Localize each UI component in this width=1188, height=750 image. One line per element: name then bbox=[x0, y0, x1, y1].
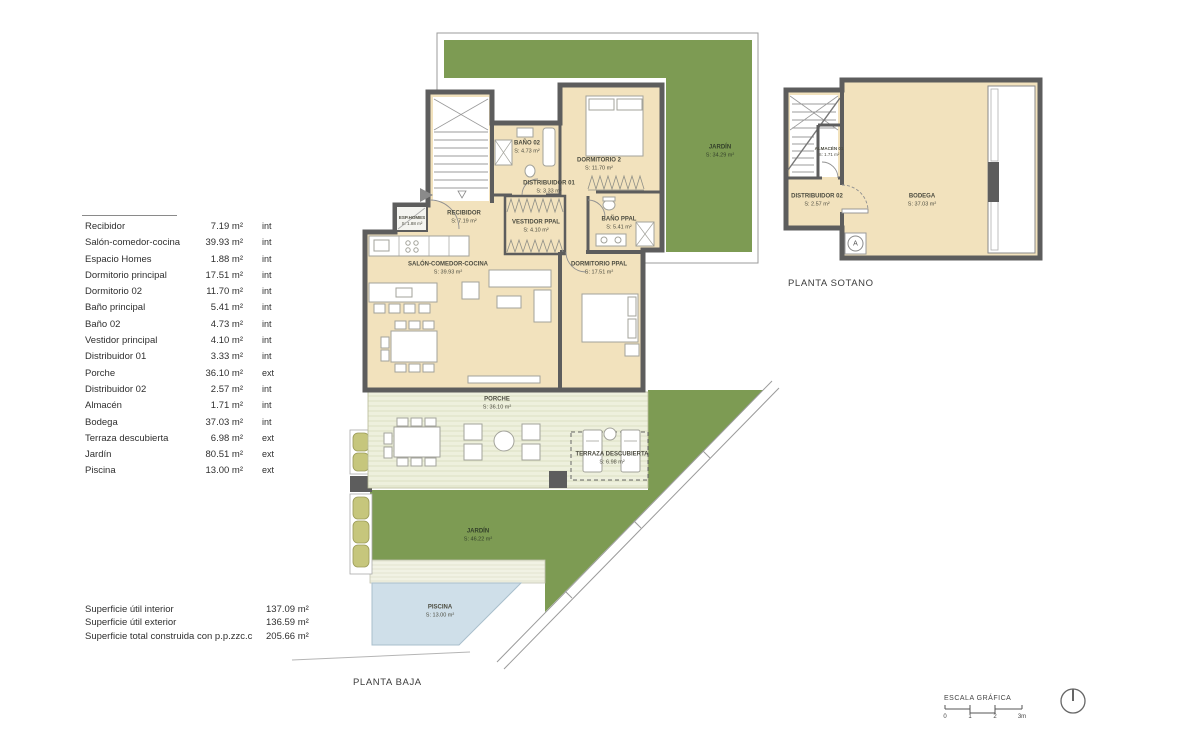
room-area: S: 34.29 m² bbox=[706, 152, 734, 159]
legend-room-area: 37.03 m² bbox=[189, 417, 243, 428]
room-name: DISTRIBUIDOR 02 bbox=[791, 194, 843, 200]
room-label-recibidor: RECIBIDORS: 7.19 m² bbox=[447, 211, 481, 226]
room-label-jardin: JARDÍNS: 46.22 m² bbox=[464, 529, 492, 544]
legend-row: Baño principal5.41 m²int bbox=[85, 302, 285, 318]
room-area: S: 39.93 m² bbox=[408, 269, 488, 276]
legend-row: Dormitorio 0211.70 m²int bbox=[85, 286, 285, 302]
room-area: S: 46.22 m² bbox=[464, 536, 492, 543]
room-name: JARDÍN bbox=[709, 145, 731, 151]
room-label-almacen: ALMACÉN 01S: 1.71 m² bbox=[815, 146, 844, 158]
legend-room-area: 80.51 m² bbox=[189, 449, 243, 460]
legend-room-area: 11.70 m² bbox=[189, 286, 243, 297]
total-name: Superficie total construida con p.p.zzc.… bbox=[85, 631, 266, 642]
legend-room-type: ext bbox=[262, 368, 274, 378]
north-indicator-icon bbox=[1061, 689, 1085, 713]
room-label-esp-homes: ESP.HOMESS: 1.88 m² bbox=[399, 215, 425, 227]
legend-row: Almacén1.71 m²int bbox=[85, 400, 285, 416]
floor-plan-sheet: Recibidor7.19 m²int Salón-comedor-cocina… bbox=[0, 0, 1188, 750]
room-area: S: 37.03 m² bbox=[908, 201, 936, 208]
room-area: S: 17.51 m² bbox=[571, 269, 627, 276]
legend-room-type: int bbox=[262, 319, 272, 329]
legend-room-name: Jardín bbox=[85, 449, 189, 460]
legend-room-name: Distribuidor 01 bbox=[85, 351, 189, 362]
room-area: S: 6.98 m² bbox=[576, 459, 649, 466]
legend-room-area: 39.93 m² bbox=[189, 237, 243, 248]
legend-room-name: Porche bbox=[85, 368, 189, 379]
legend-room-name: Piscina bbox=[85, 465, 189, 476]
legend-room-type: int bbox=[262, 237, 272, 247]
legend-room-area: 4.10 m² bbox=[189, 335, 243, 346]
pool-deck bbox=[370, 560, 545, 583]
legend-room-area: 1.88 m² bbox=[189, 254, 243, 265]
room-label-bano-ppal: BAÑO PPALS: 5.41 m² bbox=[602, 217, 637, 232]
sotano-staircase bbox=[788, 95, 840, 177]
legend-room-area: 6.98 m² bbox=[189, 433, 243, 444]
room-name: DORMITORIO PPAL bbox=[571, 262, 627, 268]
legend-room-name: Recibidor bbox=[85, 221, 189, 232]
legend-room-type: int bbox=[262, 270, 272, 280]
room-label-jardin-superior: JARDÍNS: 34.29 m² bbox=[706, 145, 734, 160]
room-name: TERRAZA DESCUBIERTA bbox=[576, 452, 649, 458]
legend-room-name: Baño 02 bbox=[85, 319, 189, 330]
room-name: VESTIDOR PPAL bbox=[512, 220, 560, 226]
plan-sotano-title: PLANTA SOTANO bbox=[788, 278, 874, 289]
legend-room-name: Dormitorio 02 bbox=[85, 286, 189, 297]
total-value: 205.66 m² bbox=[266, 631, 309, 642]
room-area: S: 11.70 m² bbox=[577, 165, 621, 172]
totals-row: Superficie total construida con p.p.zzc.… bbox=[85, 631, 309, 644]
legend-room-type: int bbox=[262, 351, 272, 361]
legend-row: Distribuidor 013.33 m²int bbox=[85, 351, 285, 367]
legend-room-name: Dormitorio principal bbox=[85, 270, 189, 281]
room-area: S: 3.33 m² bbox=[523, 188, 575, 195]
scale-bar-graphic bbox=[945, 705, 1022, 713]
room-label-bano02: BAÑO 02S: 4.73 m² bbox=[514, 141, 540, 156]
legend-room-area: 7.19 m² bbox=[189, 221, 243, 232]
legend-room-type: int bbox=[262, 335, 272, 345]
legend-row: Porche36.10 m²ext bbox=[85, 368, 285, 384]
room-area: S: 13.00 m² bbox=[426, 612, 454, 619]
legend-room-area: 5.41 m² bbox=[189, 302, 243, 313]
room-label-terraza: TERRAZA DESCUBIERTAS: 6.98 m² bbox=[576, 452, 649, 467]
plan-sotano-drawing bbox=[786, 80, 1040, 258]
room-name: JARDÍN bbox=[467, 529, 489, 535]
legend-room-name: Baño principal bbox=[85, 302, 189, 313]
legend-room-area: 3.33 m² bbox=[189, 351, 243, 362]
room-name: ESP.HOMES bbox=[399, 215, 425, 220]
room-name: DISTRIBUIDOR 01 bbox=[523, 181, 575, 187]
legend-row: Espacio Homes1.88 m²int bbox=[85, 254, 285, 270]
legend-room-name: Salón-comedor-cocina bbox=[85, 237, 189, 248]
legend-room-type: int bbox=[262, 221, 272, 231]
legend-room-area: 4.73 m² bbox=[189, 319, 243, 330]
legend-row: Terraza descubierta6.98 m²ext bbox=[85, 433, 285, 449]
room-name: BODEGA bbox=[909, 194, 935, 200]
room-name: BAÑO PPAL bbox=[602, 217, 637, 223]
legend-room-area: 1.71 m² bbox=[189, 400, 243, 411]
room-label-dormitorio-ppal: DORMITORIO PPALS: 17.51 m² bbox=[571, 262, 627, 277]
room-legend: Recibidor7.19 m²int Salón-comedor-cocina… bbox=[85, 221, 285, 482]
room-area: S: 4.73 m² bbox=[514, 148, 540, 155]
legend-row: Distribuidor 022.57 m²int bbox=[85, 384, 285, 400]
scale-tick-1: 1 bbox=[968, 714, 971, 720]
legend-row: Dormitorio principal17.51 m²int bbox=[85, 270, 285, 286]
legend-row: Bodega37.03 m²int bbox=[85, 417, 285, 433]
room-area: S: 1.88 m² bbox=[399, 221, 425, 227]
legend-room-name: Bodega bbox=[85, 417, 189, 428]
total-name: Superficie útil exterior bbox=[85, 617, 266, 628]
room-name: ALMACÉN 01 bbox=[815, 146, 844, 151]
room-label-vestidor: VESTIDOR PPALS: 4.10 m² bbox=[512, 220, 560, 235]
legend-room-type: int bbox=[262, 417, 272, 427]
legend-room-type: int bbox=[262, 254, 272, 264]
scale-tick-3: 3m bbox=[1018, 714, 1026, 720]
room-label-distribuidor01: DISTRIBUIDOR 01S: 3.33 m² bbox=[523, 181, 575, 196]
room-label-distribuidor02: DISTRIBUIDOR 02S: 2.57 m² bbox=[791, 194, 843, 209]
surface-totals: Superficie útil interior137.09 m² Superf… bbox=[85, 604, 309, 644]
room-name: PORCHE bbox=[484, 397, 510, 403]
legend-room-name: Espacio Homes bbox=[85, 254, 189, 265]
legend-row: Piscina13.00 m²ext bbox=[85, 465, 285, 481]
legend-row: Recibidor7.19 m²int bbox=[85, 221, 285, 237]
legend-room-type: int bbox=[262, 302, 272, 312]
legend-room-area: 13.00 m² bbox=[189, 465, 243, 476]
legend-room-type: int bbox=[262, 400, 272, 410]
room-area: S: 2.57 m² bbox=[791, 201, 843, 208]
legend-row: Jardín80.51 m²ext bbox=[85, 449, 285, 465]
room-name: PISCINA bbox=[428, 605, 452, 611]
room-area: S: 36.10 m² bbox=[483, 404, 511, 411]
room-label-piscina: PISCINAS: 13.00 m² bbox=[426, 605, 454, 620]
total-value: 137.09 m² bbox=[266, 604, 309, 615]
legend-room-area: 36.10 m² bbox=[189, 368, 243, 379]
legend-room-type: ext bbox=[262, 465, 274, 475]
room-label-dormitorio2: DORMITORIO 2S: 11.70 m² bbox=[577, 158, 621, 173]
scale-tick-0: 0 bbox=[943, 714, 946, 720]
scale-bar-title: ESCALA GRÁFICA bbox=[944, 695, 1011, 702]
legend-room-area: 17.51 m² bbox=[189, 270, 243, 281]
legend-room-name: Terraza descubierta bbox=[85, 433, 189, 444]
legend-room-type: int bbox=[262, 384, 272, 394]
total-name: Superficie útil interior bbox=[85, 604, 266, 615]
room-name: RECIBIDOR bbox=[447, 211, 481, 217]
scale-tick-2: 2 bbox=[993, 714, 996, 720]
legend-room-name: Vestidor principal bbox=[85, 335, 189, 346]
section-marker-letter: A bbox=[853, 240, 858, 247]
legend-row: Vestidor principal4.10 m²int bbox=[85, 335, 285, 351]
plan-baja-title: PLANTA BAJA bbox=[353, 677, 422, 688]
legend-room-type: ext bbox=[262, 433, 274, 443]
legend-room-type: int bbox=[262, 286, 272, 296]
room-name: BAÑO 02 bbox=[514, 141, 540, 147]
room-label-salon: SALÓN-COMEDOR-COCINAS: 39.93 m² bbox=[408, 262, 488, 277]
room-area: S: 1.71 m² bbox=[815, 152, 844, 158]
legend-row: Salón-comedor-cocina39.93 m²int bbox=[85, 237, 285, 253]
legend-room-type: ext bbox=[262, 449, 274, 459]
totals-row: Superficie útil exterior136.59 m² bbox=[85, 617, 309, 630]
staircase bbox=[433, 97, 489, 201]
totals-row: Superficie útil interior137.09 m² bbox=[85, 604, 309, 617]
room-area: S: 7.19 m² bbox=[447, 218, 481, 225]
legend-room-name: Distribuidor 02 bbox=[85, 384, 189, 395]
room-area: S: 4.10 m² bbox=[512, 227, 560, 234]
plan-baja-drawing bbox=[292, 33, 779, 669]
total-value: 136.59 m² bbox=[266, 617, 309, 628]
legend-room-name: Almacén bbox=[85, 400, 189, 411]
room-label-bodega: BODEGAS: 37.03 m² bbox=[908, 194, 936, 209]
sotano-window-strip bbox=[988, 86, 1035, 253]
legend-room-area: 2.57 m² bbox=[189, 384, 243, 395]
room-name: SALÓN-COMEDOR-COCINA bbox=[408, 262, 488, 268]
room-label-porche: PORCHES: 36.10 m² bbox=[483, 397, 511, 412]
room-area: S: 5.41 m² bbox=[602, 224, 637, 231]
room-name: DORMITORIO 2 bbox=[577, 158, 621, 164]
legend-row: Baño 024.73 m²int bbox=[85, 319, 285, 335]
legend-divider bbox=[82, 215, 177, 216]
